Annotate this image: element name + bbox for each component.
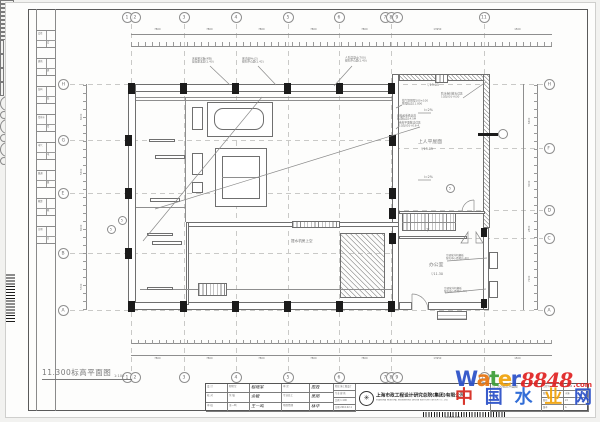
tb-sign-name: 王一鸣 (228, 403, 250, 412)
title-block-text: 审 核 (207, 404, 213, 407)
drawing-title: 11.300标高平面图 1:100 (42, 367, 132, 380)
title-block-text: 程晓军 (229, 385, 237, 388)
drawing-title-text: 11.300标高平面图 (42, 367, 111, 378)
tb-stage-cell: 比例 1:100 (334, 398, 356, 405)
watermark-cn-char: 国 (485, 388, 503, 409)
barcode-vertical (6, 273, 15, 322)
tb-signature: 王一鸣 (250, 403, 282, 412)
title-block-text: 程晓军 (251, 385, 264, 390)
watermark-cn-char: 网 (574, 388, 592, 409)
title-block-text: 王一鸣 (251, 404, 264, 409)
title-block-text: 审 定 (283, 385, 289, 388)
watermark-cn-char: 业 (544, 388, 562, 409)
tb-stage-cell: 日期 2010.02.1 (334, 405, 356, 412)
company-name-en: SHANGHAI MUNICIPAL ENGINEERING DESIGN IN… (376, 399, 448, 401)
title-block-text: 林华 (311, 404, 319, 409)
tb-sign-label: 设 计 (206, 384, 228, 393)
title-block-text: 专业 建 筑 (335, 392, 346, 395)
tb-sign-label: 审 核 (206, 403, 228, 412)
plan-leader-lines (0, 0, 600, 422)
tb-stage-cell: 阶段 施工图设计 (334, 384, 356, 391)
tb-sign-name: 余 敏 (228, 393, 250, 402)
title-block-text: 项目经理 (283, 404, 293, 407)
tb-sign-name: 程晓军 (228, 384, 250, 393)
company-logo-icon: ✳ (359, 391, 374, 406)
cad-drawing-canvas: 会签会建筑建结构结给排水给电气电暖通暖概算概日期日 11223344556677… (0, 0, 600, 422)
title-block-text: 余敏 (251, 394, 259, 399)
tb-sign-label: 专业总工 (282, 393, 310, 402)
title-block-text: 余 敏 (229, 394, 235, 397)
tb-sign-label: 审 定 (282, 384, 310, 393)
tb-signature: 林华 (310, 403, 334, 412)
tb-signature: 程晓军 (250, 384, 282, 393)
title-block-text: 比例 1:100 (335, 399, 347, 402)
watermark-cn-char: 中 (455, 388, 473, 409)
tb-stage-cell: 专业 建 筑 (334, 391, 356, 398)
title-block-text: 校 对 (207, 394, 213, 397)
title-block-text: 周政 (311, 385, 319, 390)
barcode-number: 04901081 (445, 416, 461, 419)
tb-sign-label: 校 对 (206, 393, 228, 402)
title-block-text: 日期 2010.02.1 (335, 406, 352, 409)
title-block-text: 阶段 施工图设计 (335, 385, 352, 388)
title-block-text: 王一鸣 (229, 404, 237, 407)
title-block-text: 专业总工 (283, 394, 293, 397)
tb-signature: 周政 (310, 384, 334, 393)
barcode-horizontal (423, 412, 505, 417)
title-block-text: 吴刚 (311, 394, 319, 399)
tb-signature: 余敏 (250, 393, 282, 402)
tb-signature: 吴刚 (310, 393, 334, 402)
watermark: Water8848.com 中国水业网 (455, 368, 592, 409)
watermark-cn-char: 水 (515, 388, 533, 409)
drawing-scale: 1:100 (114, 374, 124, 378)
title-block-text: 设 计 (207, 385, 213, 388)
tb-sign-label: 项目经理 (282, 403, 310, 412)
